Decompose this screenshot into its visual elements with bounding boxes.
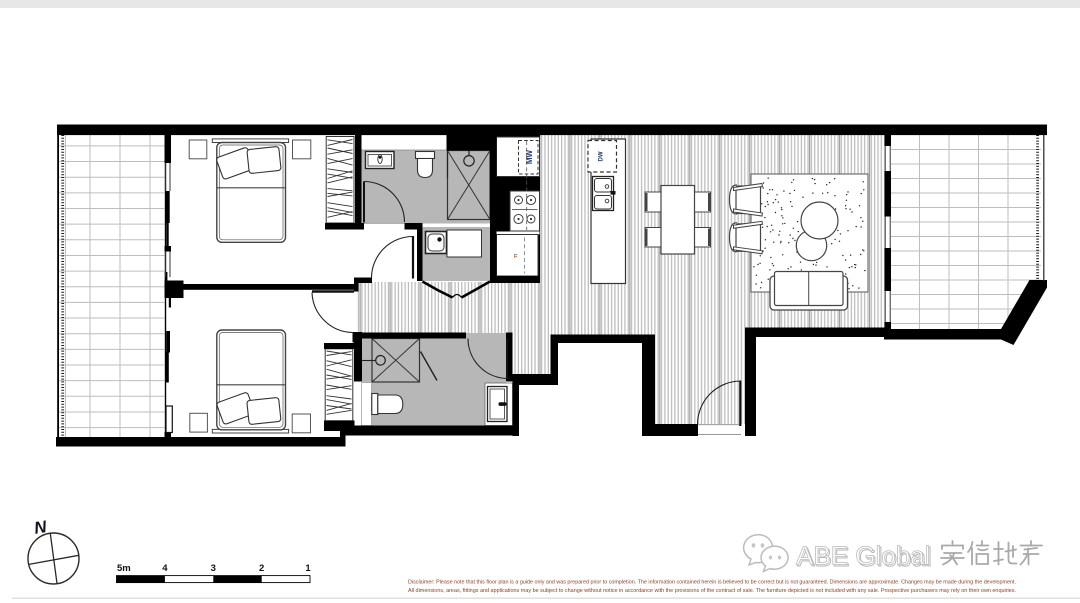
svg-text:Disclaimer: Please note that t: Disclaimer: Please note that this floor … — [408, 580, 1016, 586]
svg-text:5m: 5m — [117, 563, 131, 574]
svg-text:DW: DW — [599, 151, 605, 161]
svg-text:4: 4 — [162, 563, 168, 574]
svg-text:1: 1 — [305, 563, 311, 574]
svg-text:2: 2 — [259, 563, 264, 574]
svg-text:All dimensions, areas, fitting: All dimensions, areas, fittings and appl… — [408, 588, 1016, 594]
svg-text:3: 3 — [211, 563, 216, 574]
svg-text:ABE Global: ABE Global — [796, 541, 930, 571]
